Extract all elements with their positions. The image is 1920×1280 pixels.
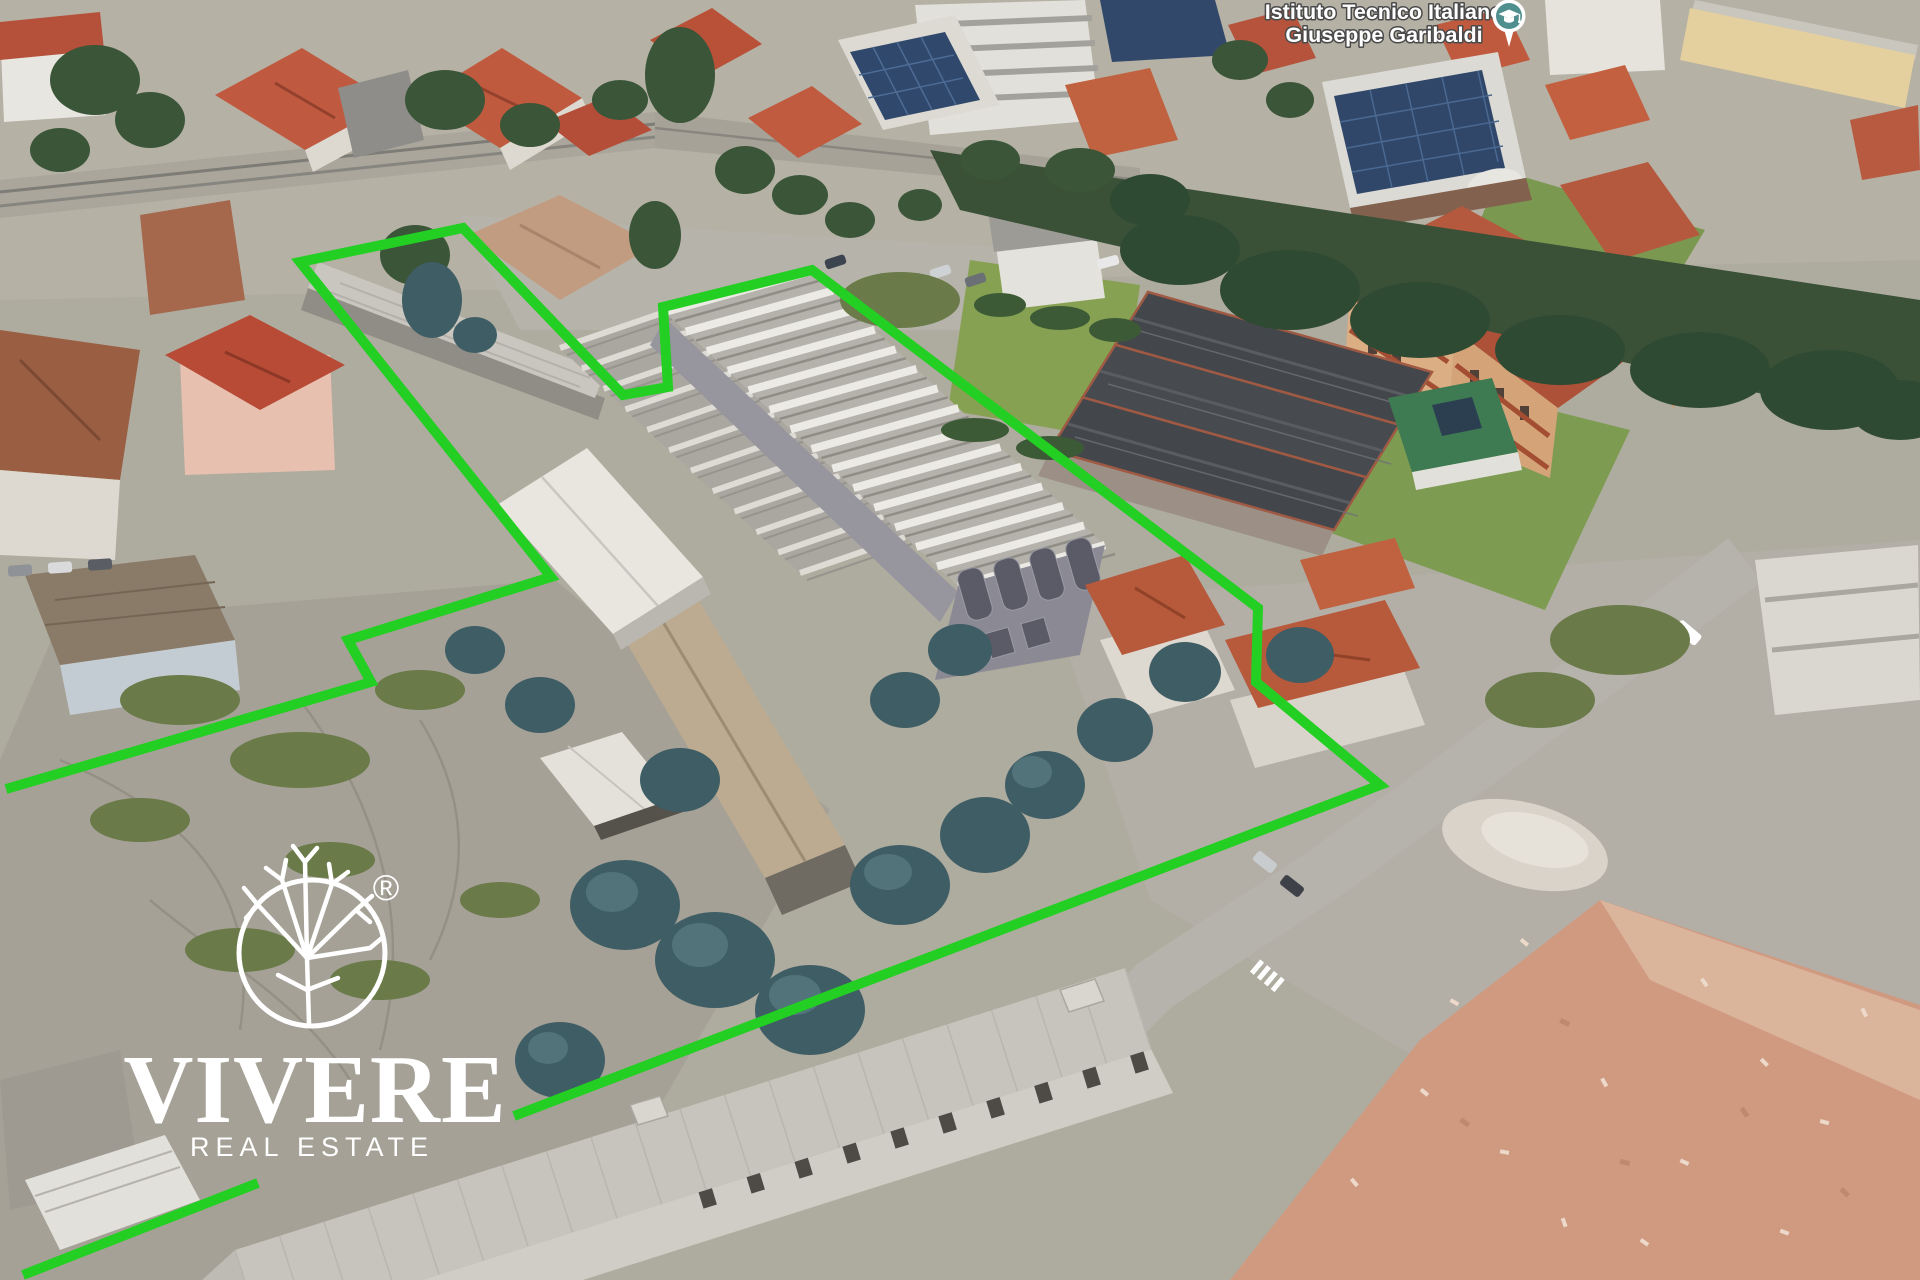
school-label-line1: Istituto Tecnico Italiano (1265, 0, 1504, 24)
registered-mark: ® (373, 867, 400, 908)
brand-name: VIVERE (123, 1036, 506, 1143)
brand-tagline: REAL ESTATE (190, 1132, 434, 1162)
east-edge-buildings (1755, 545, 1920, 715)
aerial-scene: ® VIVERE REAL ESTATE Istituto Tecnico It… (0, 0, 1920, 1280)
aerial-screenshot: ® VIVERE REAL ESTATE Istituto Tecnico It… (0, 0, 1920, 1280)
school-label-line2: Giuseppe Garibaldi (1285, 23, 1482, 47)
